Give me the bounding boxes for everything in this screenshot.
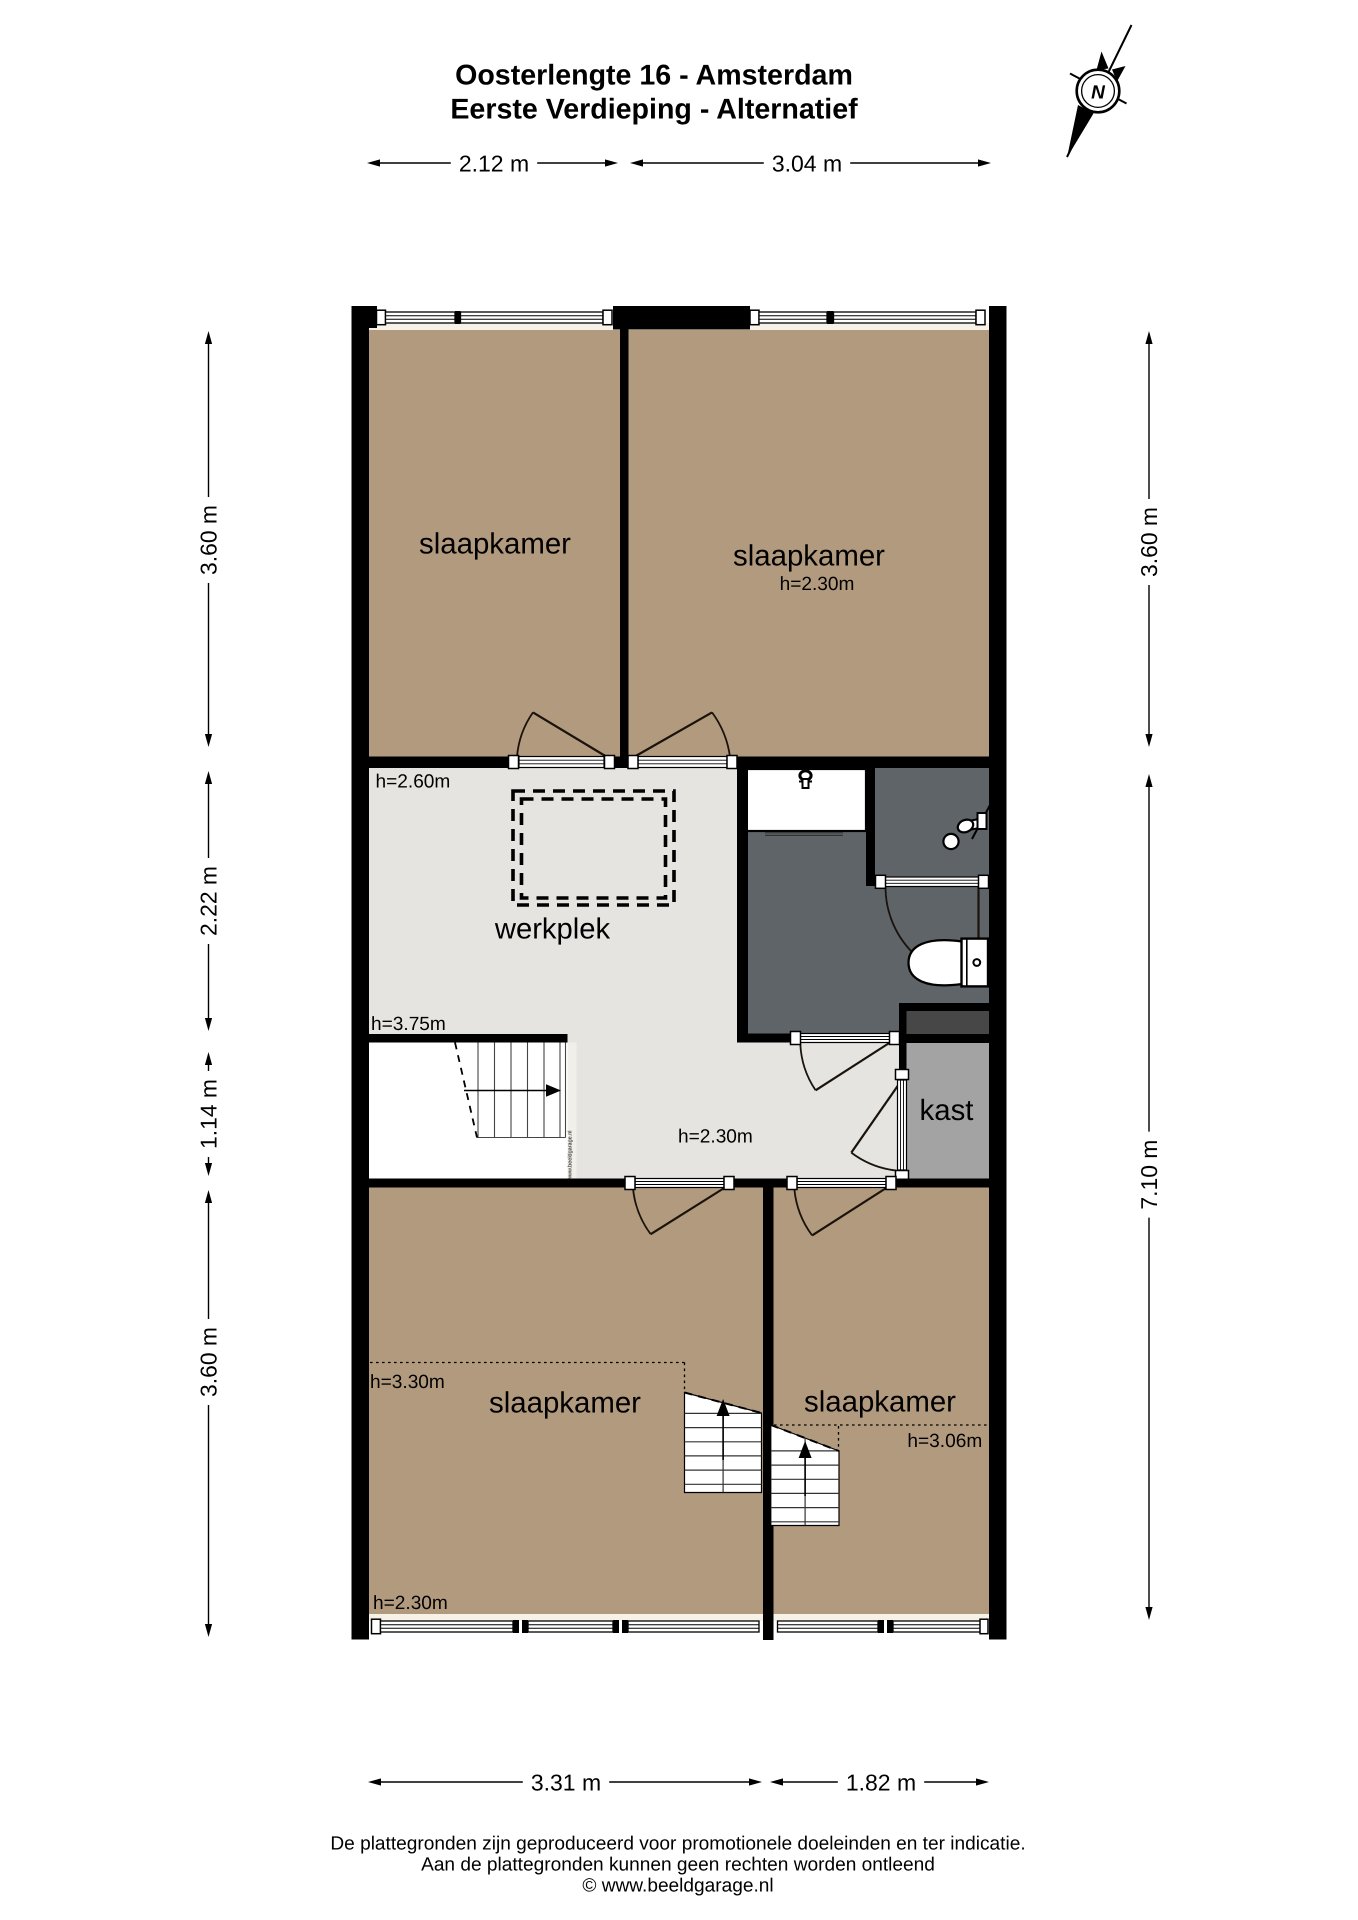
svg-text:h=2.30m: h=2.30m: [780, 574, 855, 595]
svg-text:kast: kast: [920, 1094, 974, 1127]
svg-text:h=2.60m: h=2.60m: [376, 771, 451, 792]
svg-text:werkplek: werkplek: [494, 914, 611, 946]
svg-text:1.14 m: 1.14 m: [196, 1079, 222, 1149]
svg-text:h=3.75m: h=3.75m: [371, 1014, 446, 1035]
svg-text:slaapkamer: slaapkamer: [733, 540, 885, 573]
svg-text:N: N: [1091, 83, 1106, 104]
svg-text:2.12 m: 2.12 m: [459, 150, 529, 176]
svg-text:h=3.06m: h=3.06m: [907, 1431, 982, 1452]
svg-text:slaapkamer: slaapkamer: [489, 1387, 641, 1420]
svg-text:h=3.30m: h=3.30m: [370, 1372, 445, 1393]
svg-text:3.60 m: 3.60 m: [196, 1327, 222, 1397]
svg-text:Oosterlengte 16 - Amsterdam: Oosterlengte 16 - Amsterdam: [455, 60, 853, 92]
svg-text:h=2.30m: h=2.30m: [678, 1126, 753, 1147]
svg-text:2.22 m: 2.22 m: [196, 866, 222, 936]
svg-text:slaapkamer: slaapkamer: [419, 528, 571, 561]
svg-text:3.04 m: 3.04 m: [772, 150, 842, 176]
svg-text:3.31 m: 3.31 m: [531, 1769, 601, 1795]
svg-text:© www.beeldgarage.nl: © www.beeldgarage.nl: [582, 1876, 773, 1897]
svg-text:Aan de plattegronden kunnen ge: Aan de plattegronden kunnen geen rechten…: [421, 1855, 935, 1876]
svg-text:3.60 m: 3.60 m: [1136, 507, 1162, 577]
svg-text:slaapkamer: slaapkamer: [804, 1386, 956, 1419]
svg-text:Eerste Verdieping - Alternatie: Eerste Verdieping - Alternatief: [450, 94, 858, 126]
svg-text:7.10 m: 7.10 m: [1136, 1140, 1162, 1210]
svg-text:De plattegronden zijn geproduc: De plattegronden zijn geproduceerd voor …: [330, 1834, 1025, 1855]
svg-text:3.60 m: 3.60 m: [196, 505, 222, 575]
svg-text:h=2.30m: h=2.30m: [373, 1593, 448, 1614]
svg-text:1.82 m: 1.82 m: [846, 1769, 916, 1795]
svg-text:www.beeldgarage.nl: www.beeldgarage.nl: [568, 1130, 574, 1181]
